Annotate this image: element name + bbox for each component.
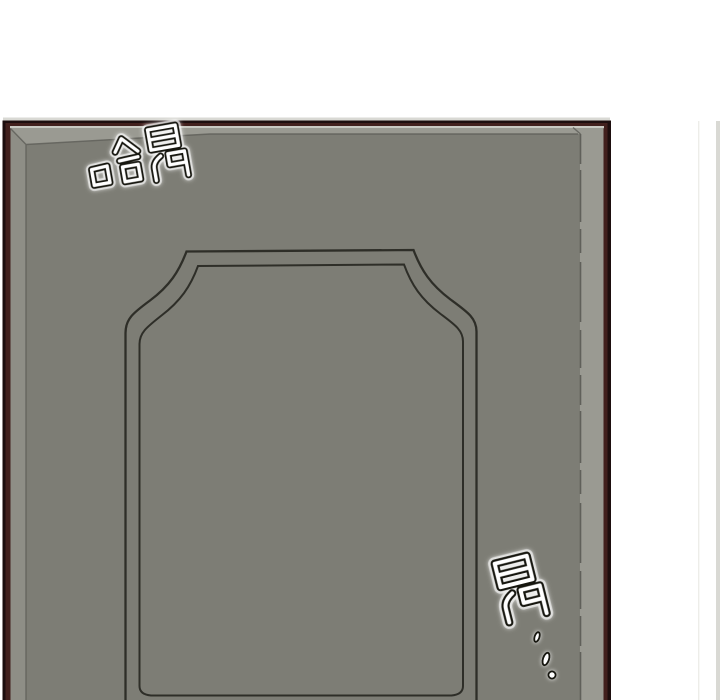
door-bevel-left: [11, 129, 27, 700]
sfx-ang-glyph-icon: [139, 120, 195, 183]
sfx-ang-bottom-glyph-icon: [485, 549, 555, 627]
sfx-ha-glyph-icon: [82, 131, 150, 194]
door-top-highlight: [3, 118, 610, 121]
sfx-trail-dot: [533, 632, 541, 643]
sfx-top-text: 哈昂: [80, 122, 81, 123]
sfx-bottom-text: 昂: [470, 545, 471, 546]
sfx-bottom-trail-text: …: [470, 545, 471, 546]
comic-panel: 哈昂 昂 …: [0, 0, 720, 700]
sfx-bottom: 昂 …: [470, 545, 570, 685]
door-illustration: [0, 0, 720, 700]
wall-hairline: [698, 121, 699, 700]
sfx-trail-dot: [548, 671, 555, 678]
sfx-trail-dots-icon: [525, 625, 565, 681]
sfx-trail-dot: [541, 652, 551, 666]
sfx-top: 哈昂: [80, 122, 210, 197]
wall-strip: [716, 121, 720, 700]
